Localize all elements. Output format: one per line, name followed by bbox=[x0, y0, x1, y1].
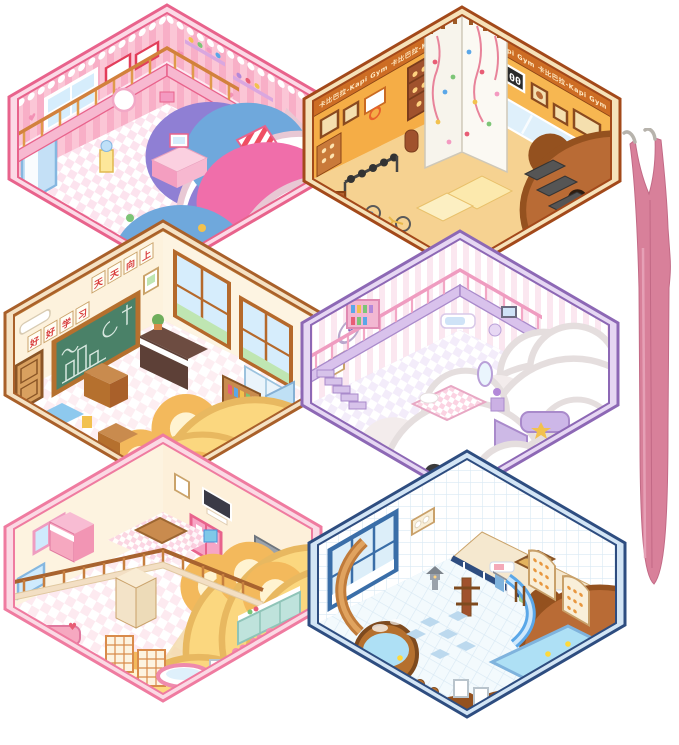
rubber-duck bbox=[397, 655, 403, 661]
gift-box bbox=[204, 530, 217, 542]
rubber-duck bbox=[545, 651, 551, 657]
rubber-duck bbox=[565, 641, 571, 647]
tweezers bbox=[612, 128, 679, 602]
lamp bbox=[493, 388, 501, 396]
loft-table bbox=[113, 89, 135, 111]
water-cooler bbox=[100, 141, 113, 173]
steam bbox=[390, 619, 402, 625]
capybara-character bbox=[608, 629, 632, 722]
steam bbox=[372, 624, 388, 632]
bear-character bbox=[121, 697, 307, 706]
shower-unit bbox=[454, 680, 468, 697]
tweezers-tip bbox=[624, 132, 635, 142]
capybara-character bbox=[601, 674, 632, 722]
wardrobe bbox=[116, 568, 156, 628]
vegetables bbox=[248, 610, 253, 615]
pillow bbox=[420, 393, 438, 403]
nightstand bbox=[491, 398, 504, 411]
product-image: ♥ ♥ ♥ ♥ ♥ ♥ bbox=[0, 0, 679, 745]
gift-box bbox=[160, 92, 174, 102]
barrel-tub bbox=[580, 652, 600, 672]
desk-chair bbox=[489, 324, 501, 336]
heart-pillow: ♥ bbox=[68, 622, 77, 633]
punching-bag bbox=[405, 130, 418, 152]
capybara-character bbox=[585, 693, 632, 722]
panel-bear-family-home: ♥ bbox=[0, 430, 328, 706]
chair bbox=[82, 416, 92, 428]
panel-capybara-bathhouse bbox=[302, 446, 632, 722]
tweezers-tip bbox=[645, 129, 655, 139]
mirror bbox=[478, 362, 492, 386]
